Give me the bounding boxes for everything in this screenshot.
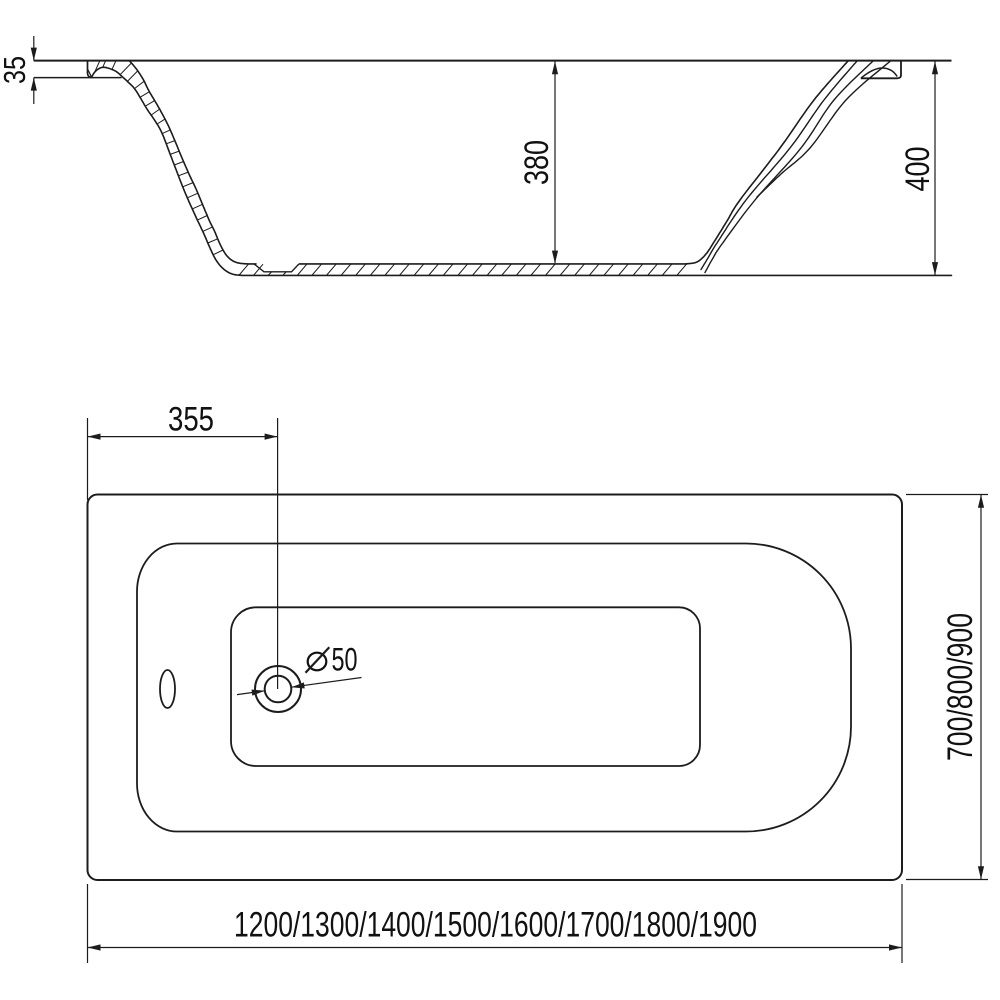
svg-text:35: 35 (0, 56, 32, 84)
svg-text:400: 400 (899, 147, 937, 192)
svg-text:700/800/900: 700/800/900 (941, 613, 980, 761)
svg-text:380: 380 (518, 140, 556, 185)
svg-text:355: 355 (168, 401, 214, 439)
svg-text:50: 50 (332, 642, 358, 678)
svg-text:1200/1300/1400/1500/1600/1700/: 1200/1300/1400/1500/1600/1700/1800/1900 (234, 906, 757, 945)
